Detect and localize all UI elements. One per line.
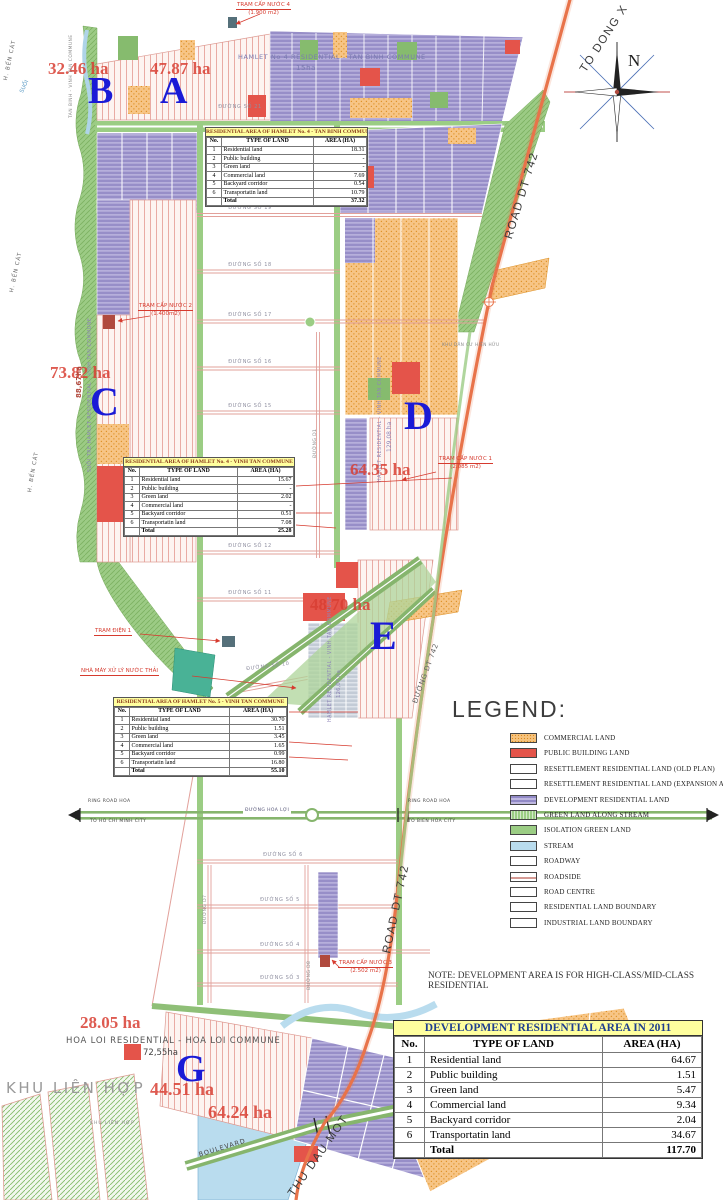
area-ha-d: 64.35 ha xyxy=(350,461,410,479)
table-row: Total37.32 xyxy=(207,197,367,206)
table-cell: 4 xyxy=(115,742,130,751)
table-title: RESIDENTIAL AREA OF HAMLET No. 4 - TAN B… xyxy=(206,128,367,137)
table-cell: 117.70 xyxy=(603,1143,702,1158)
table-cell xyxy=(125,527,140,536)
table-row: 1Residential land18.31 xyxy=(207,146,367,155)
annotation-tram-dien-1: TRẠM ĐIỆN 1 xyxy=(94,628,132,636)
table-cell: 1 xyxy=(395,1053,425,1068)
legend-item-resettlement-expansion: RESETTLEMENT RESIDENTIAL LAND (EXPANSION… xyxy=(510,779,720,789)
road-label-so21: ĐƯỜNG SỐ 21 xyxy=(195,105,285,110)
table-cell: Green land xyxy=(140,493,238,502)
legend-item-development-residential: DEVELOPMENT RESIDENTIAL LAND xyxy=(510,795,720,805)
table-cell: 3 xyxy=(207,163,222,172)
table-cell: Public building xyxy=(140,485,238,494)
table-cell: 5 xyxy=(115,750,130,759)
table-cell: 6 xyxy=(115,759,130,768)
table-cell: 6 xyxy=(125,519,140,528)
table-cell xyxy=(395,1143,425,1158)
table-cell: 6 xyxy=(207,189,222,198)
table-row: 5Backyard corridor0.51 xyxy=(125,510,294,519)
table-row: 6Transportatin land34.67 xyxy=(395,1128,702,1143)
label-hoa-loi-residential: HOA LOI RESIDENTIAL - HOA LOI COMMUNE xyxy=(66,1037,281,1046)
table-cell: 0.51 xyxy=(238,510,294,519)
annotation-tram-cap-nuoc-3: TRẠM CẤP NƯỚC 3 (2.502 m2) xyxy=(338,960,393,975)
table-cell: 5 xyxy=(207,180,222,189)
table-cell: 10.79 xyxy=(314,189,367,198)
table-row: Total55.10 xyxy=(115,767,287,776)
legend-item-isolation-green: ISOLATION GREEN LAND xyxy=(510,825,720,835)
label-hamlet4-tanbinh: HAMLET No 4 RESIDENTIAL - TAN BINH COMMU… xyxy=(238,54,426,61)
road-label-so15: ĐƯỜNG SỐ 15 xyxy=(205,404,295,409)
table-title: DEVELOPMENT RESIDENTIAL AREA IN 2011 xyxy=(394,1021,702,1036)
col-no: No. xyxy=(395,1037,425,1053)
roadside-swatch xyxy=(510,872,537,882)
table-title: RESIDENTIAL AREA OF HAMLET No. 4 - VINH … xyxy=(124,458,294,467)
table-cell: 30.70 xyxy=(230,716,287,725)
table-cell: 3 xyxy=(115,733,130,742)
hamlet-d-blocks xyxy=(345,218,458,530)
table-cell: 4 xyxy=(207,172,222,181)
table-row: Total25.28 xyxy=(125,527,294,536)
annotation-tram-cap-nuoc-2: TRẠM CẤP NƯỚC 2 (1.400m2) xyxy=(138,303,193,318)
col-type: TYPE OF LAND xyxy=(425,1037,603,1053)
table-cell: Public building xyxy=(222,155,314,164)
label-khu-lien-hop: KHU LIÊN HỢP xyxy=(6,1080,145,1096)
table-row: Total117.70 xyxy=(395,1143,702,1158)
table-cell: Residential land xyxy=(425,1053,603,1068)
road-label-ring-right: RING ROAD HOA xyxy=(408,800,450,805)
road-label-hoa-loi: ĐƯỜNG HOA LỢI xyxy=(243,809,291,814)
table-row: 6Transportatin land10.79 xyxy=(207,189,367,198)
legend-item-industrial-boundary: INDUSTRIAL LAND BOUNDARY xyxy=(510,918,720,928)
area-letter-b: B xyxy=(88,72,113,110)
area-ha-g-mid: 44.51 ha xyxy=(150,1080,214,1099)
compass-rose xyxy=(564,42,670,142)
annotation-tram-cap-nuoc-1: TRẠM CẤP NƯỚC 1 (2.085 m2) xyxy=(438,456,493,471)
annotation-size: (1.400m2) xyxy=(138,311,193,318)
stream-swatch xyxy=(510,841,537,851)
area-letter-e: E xyxy=(370,616,397,656)
table-cell: 6 xyxy=(395,1128,425,1143)
isolation-green-swatch xyxy=(510,825,537,835)
table-cell: Residential land xyxy=(222,146,314,155)
col-no: No. xyxy=(125,468,140,477)
table-cell: 3.45 xyxy=(230,733,287,742)
area-ha-e: 48.70 ha xyxy=(310,596,370,614)
table-cell: 2 xyxy=(115,725,130,734)
annotation-size: (2.085 m2) xyxy=(438,464,493,471)
residential-boundary-swatch xyxy=(510,902,537,912)
col-area: AREA (HA) xyxy=(603,1037,702,1053)
table-row: 1Residential land30.70 xyxy=(115,716,287,725)
road-label-so4: ĐƯỜNG SỐ 4 xyxy=(235,943,325,948)
col-type: TYPE OF LAND xyxy=(130,708,230,717)
label-khu-lien-hop-small: KHU LIÊN HỢP xyxy=(90,1122,135,1127)
legend-item-stream: STREAM xyxy=(510,841,720,851)
col-no: No. xyxy=(115,708,130,717)
table-cell: Green land xyxy=(130,733,230,742)
table-cell: Transportatin land xyxy=(130,759,230,768)
annotation-line: TRẠM CẤP NƯỚC 2 xyxy=(138,303,193,311)
note-text: NOTE: DEVELOPMENT AREA IS FOR HIGH-CLASS… xyxy=(428,971,723,991)
legend-item-green-land-stream: GREEN LAND ALONG STREAM xyxy=(510,810,720,820)
label-c-name-vertical: SUỐI TRE HAMLET RESIDENTIAL - VINH TAN C… xyxy=(88,318,93,472)
table-row: 5Backyard corridor2.04 xyxy=(395,1113,702,1128)
table-row: 4Commercial land9.34 xyxy=(395,1098,702,1113)
annotation-line: NHÀ MÁY XỬ LÝ NƯỚC THẢI xyxy=(80,668,159,676)
table-cell: Total xyxy=(425,1143,603,1158)
area-ha-g-top: 28.05 ha xyxy=(80,1014,140,1032)
legend-title: LEGEND: xyxy=(452,696,720,723)
table-cell: 1 xyxy=(207,146,222,155)
table-cell: Total xyxy=(130,767,230,776)
table-cell: 3 xyxy=(125,493,140,502)
legend-item-commercial: COMMERCIAL LAND xyxy=(510,733,720,743)
label-e-ha-vertical: 126,07 ha xyxy=(337,670,343,698)
table-row: 5Backyard corridor0.54 xyxy=(207,180,367,189)
col-type: TYPE OF LAND xyxy=(140,468,238,477)
table-cell: Residential land xyxy=(130,716,230,725)
table-row: 2Public building- xyxy=(125,485,294,494)
label-hamlet4-tanbinh-ha: 15ha xyxy=(296,65,316,73)
legend-item-residential-boundary: RESIDENTIAL LAND BOUNDARY xyxy=(510,902,720,912)
table-cell: - xyxy=(238,502,294,511)
table-cell: Transportatin land xyxy=(222,189,314,198)
table-cell: 1 xyxy=(125,476,140,485)
table-hamlet4-tan-binh: RESIDENTIAL AREA OF HAMLET No. 4 - TAN B… xyxy=(205,127,368,207)
road-label-so12: ĐƯỜNG SỐ 12 xyxy=(205,544,295,549)
table-cell: 4 xyxy=(395,1098,425,1113)
road-label-so5: ĐƯỜNG SỐ 5 xyxy=(235,898,325,903)
development-residential-swatch xyxy=(510,795,537,805)
table-row: 2Public building- xyxy=(207,155,367,164)
table-cell: Backyard corridor xyxy=(130,750,230,759)
table-row: 3Green land- xyxy=(207,163,367,172)
table-cell: 5 xyxy=(125,510,140,519)
road-label-so16: ĐƯỜNG SỐ 16 xyxy=(205,360,295,365)
legend-item-public-building: PUBLIC BUILDING LAND xyxy=(510,748,720,758)
table-cell: 4 xyxy=(125,502,140,511)
table-hamlet4-vinh-tan: RESIDENTIAL AREA OF HAMLET No. 4 - VINH … xyxy=(123,457,295,537)
table-cell: 5 xyxy=(395,1113,425,1128)
road-label-d7: ĐƯỜNG D7 xyxy=(204,895,209,924)
table-row: 2Public building1.51 xyxy=(115,725,287,734)
table-cell: Commercial land xyxy=(425,1098,603,1113)
table-cell: 34.67 xyxy=(603,1128,702,1143)
table-cell: Total xyxy=(140,527,238,536)
legend-item-resettlement-old: RESETTLEMENT RESIDENTIAL LAND (OLD PLAN) xyxy=(510,764,720,774)
table-cell: 15.67 xyxy=(238,476,294,485)
label-hoa-loi-ha: 72,55ha xyxy=(143,1049,178,1058)
label-e-name-vertical: HAMLET RESIDENTIAL - VINH TAN COMMUNE xyxy=(328,596,333,722)
table-cell: 2.04 xyxy=(603,1113,702,1128)
table-cell: Backyard corridor xyxy=(140,510,238,519)
table-row: 6Transportatin land16.80 xyxy=(115,759,287,768)
label-khu-dan-cu: KHU DÂN CƯ HIỆN HỮU xyxy=(442,343,500,348)
legend-item-roadway: ROADWAY xyxy=(510,856,720,866)
table-cell: 18.31 xyxy=(314,146,367,155)
area-letter-c: C xyxy=(90,382,119,422)
table-development-2011: DEVELOPMENT RESIDENTIAL AREA IN 2011 No.… xyxy=(393,1020,703,1159)
table-cell: Public building xyxy=(130,725,230,734)
road-label-d8: ĐƯỜNG D8 xyxy=(308,961,313,990)
table-cell: 2 xyxy=(125,485,140,494)
table-cell: 1.51 xyxy=(603,1068,702,1083)
legend: LEGEND: COMMERCIAL LAND PUBLIC BUILDING … xyxy=(452,696,720,928)
area-letter-a: A xyxy=(160,72,187,110)
table-cell: - xyxy=(314,163,367,172)
table-row: 3Green land3.45 xyxy=(115,733,287,742)
col-type: TYPE OF LAND xyxy=(222,138,314,147)
compass-north-label: N xyxy=(628,52,640,70)
annotation-line: TRẠM CẤP NƯỚC 3 xyxy=(338,960,393,968)
public-building-land-swatch xyxy=(510,748,537,758)
table-cell: Green land xyxy=(425,1083,603,1098)
table-cell: Commercial land xyxy=(130,742,230,751)
table-row: 4Commercial land1.65 xyxy=(115,742,287,751)
table-cell: 1.51 xyxy=(230,725,287,734)
col-area: AREA (HA) xyxy=(238,468,294,477)
area-ha-g-bot: 64.24 ha xyxy=(208,1103,272,1122)
table-hamlet5-vinh-tan: RESIDENTIAL AREA OF HAMLET No. 5 - VINH … xyxy=(113,697,288,777)
industrial-boundary-swatch xyxy=(510,918,537,928)
road-label-so18: ĐƯỜNG SỐ 18 xyxy=(205,263,295,268)
table-cell: Public building xyxy=(425,1068,603,1083)
table-row: 3Green land5.47 xyxy=(395,1083,702,1098)
table-cell: 0.54 xyxy=(314,180,367,189)
table-cell: 9.34 xyxy=(603,1098,702,1113)
table-cell: 2 xyxy=(207,155,222,164)
table-cell: Transportatin land xyxy=(425,1128,603,1143)
table-row: 2Public building1.51 xyxy=(395,1068,702,1083)
table-cell: Commercial land xyxy=(222,172,314,181)
table-cell: 2.02 xyxy=(238,493,294,502)
table-cell: - xyxy=(314,155,367,164)
table-title: RESIDENTIAL AREA OF HAMLET No. 5 - VINH … xyxy=(114,698,287,707)
land-use-plan-document: TRẠM CẤP NƯỚC 4 (1.900 m2) 32.46 ha 47.8… xyxy=(0,0,723,1200)
annotation-line: TRẠM CẤP NƯỚC 1 xyxy=(438,456,493,464)
table-cell: 0.99 xyxy=(230,750,287,759)
table-cell: Commercial land xyxy=(140,502,238,511)
table-cell: 1.65 xyxy=(230,742,287,751)
legend-item-road-centre: ROAD CENTRE xyxy=(510,887,720,897)
table-row: 4Commercial land- xyxy=(125,502,294,511)
annotation-tram-cap-nuoc-4: TRẠM CẤP NƯỚC 4 (1.900 m2) xyxy=(236,2,291,17)
table-cell: Residential land xyxy=(140,476,238,485)
table-cell xyxy=(115,767,130,776)
road-label-so6: ĐƯỜNG SỐ 6 xyxy=(238,853,328,858)
commercial-land-swatch xyxy=(510,733,537,743)
table-row: 1Residential land15.67 xyxy=(125,476,294,485)
annotation-size: (1.900 m2) xyxy=(236,10,291,17)
resettlement-old-plan-swatch xyxy=(510,764,537,774)
road-label-to-bien-hoa: TO BIEN HOA CITY xyxy=(408,820,456,825)
table-cell: Transportatin land xyxy=(140,519,238,528)
table-cell: 7.08 xyxy=(238,519,294,528)
label-c-ha-vertical: 88,67ha xyxy=(76,366,84,398)
table-row: 4Commercial land7.69 xyxy=(207,172,367,181)
roundabout xyxy=(305,317,315,327)
legend-item-roadside: ROADSIDE xyxy=(510,872,720,882)
table-cell: 64.67 xyxy=(603,1053,702,1068)
label-d-ha-vertical: 129,08 ha xyxy=(387,422,393,452)
table-row: 6Transportatin land7.08 xyxy=(125,519,294,528)
area-letter-d: D xyxy=(404,396,433,436)
table-cell xyxy=(207,197,222,206)
table-cell: 16.80 xyxy=(230,759,287,768)
road-label-to-hcmc: TO HO CHI MINH CITY xyxy=(90,820,146,825)
legend-items: COMMERCIAL LAND PUBLIC BUILDING LAND RES… xyxy=(510,733,720,928)
table-cell: Total xyxy=(222,197,314,206)
road-label-d1: ĐƯỜNG D1 xyxy=(314,429,319,458)
col-area: AREA (HA) xyxy=(314,138,367,147)
annotation-line: TRẠM CẤP NƯỚC 4 xyxy=(236,2,291,10)
annotation-size: (2.502 m2) xyxy=(338,968,393,975)
table-cell: 25.28 xyxy=(238,527,294,536)
resettlement-expansion-swatch xyxy=(510,779,537,789)
table-cell: - xyxy=(238,485,294,494)
table-cell: 2 xyxy=(395,1068,425,1083)
table-row: 1Residential land64.67 xyxy=(395,1053,702,1068)
table-cell: Green land xyxy=(222,163,314,172)
col-area: AREA (HA) xyxy=(230,708,287,717)
road-label-ring-left: RING ROAD HOA xyxy=(88,800,130,805)
annotation-nha-may: NHÀ MÁY XỬ LÝ NƯỚC THẢI xyxy=(80,668,159,676)
road-label-so17: ĐƯỜNG SỐ 17 xyxy=(205,313,295,318)
table-row: 5Backyard corridor0.99 xyxy=(115,750,287,759)
label-commune-boundary: TAN BINH - VINH TAN COMMUNE xyxy=(70,34,75,118)
table-cell: 5.47 xyxy=(603,1083,702,1098)
table-cell: 7.69 xyxy=(314,172,367,181)
table-cell: 37.32 xyxy=(314,197,367,206)
table-cell: 3 xyxy=(395,1083,425,1098)
table-cell: Backyard corridor xyxy=(425,1113,603,1128)
col-no: No. xyxy=(207,138,222,147)
road-centre-swatch xyxy=(510,887,537,897)
green-land-stream-swatch xyxy=(510,810,537,820)
table-cell: Backyard corridor xyxy=(222,180,314,189)
roadway-swatch xyxy=(510,856,537,866)
road-label-so11: ĐƯỜNG SỐ 11 xyxy=(205,591,295,596)
table-row: 3Green land2.02 xyxy=(125,493,294,502)
table-cell: 1 xyxy=(115,716,130,725)
table-cell: 55.10 xyxy=(230,767,287,776)
annotation-line: TRẠM ĐIỆN 1 xyxy=(94,628,132,636)
